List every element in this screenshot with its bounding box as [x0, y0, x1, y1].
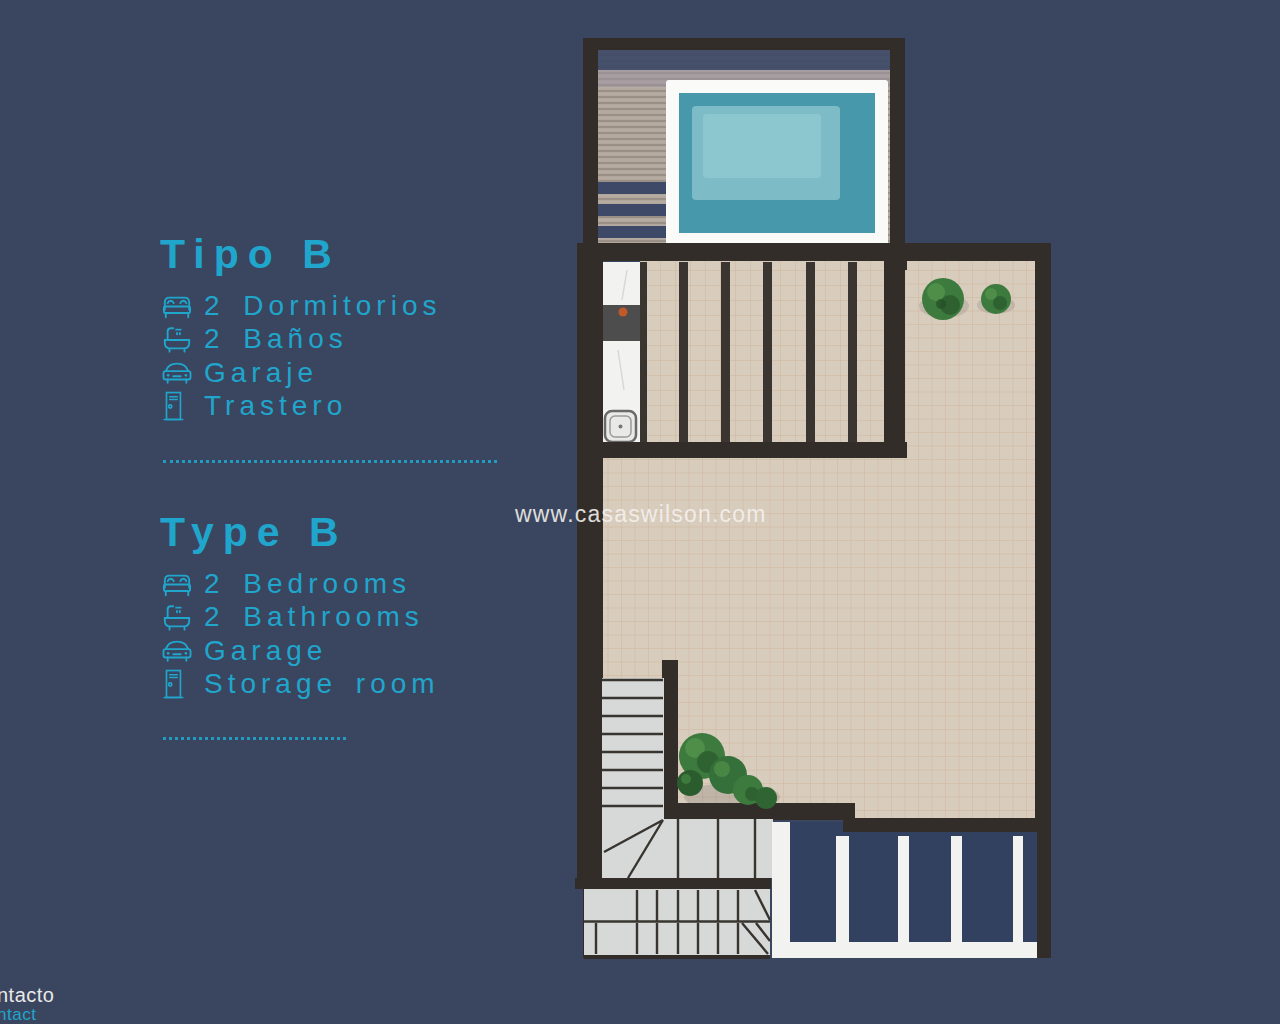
roof-terrace-right: [903, 258, 1037, 820]
contact-link-partial[interactable]: ntacto: [0, 984, 54, 1007]
bed-icon: [160, 567, 198, 601]
floor-plan: [575, 30, 1067, 965]
legend-item-label: 2 Bedrooms: [198, 570, 411, 598]
legend-item-label: 2 Bathrooms: [198, 603, 424, 631]
legend-title-es: Tipo B: [160, 234, 341, 275]
watermark: www.casaswilson.com: [515, 501, 767, 528]
door-icon: [160, 667, 198, 701]
car-icon: [160, 356, 198, 390]
legend-title-en: Type B: [160, 512, 348, 553]
legend-row-bedrooms: 2 Dormitorios: [160, 289, 441, 323]
car-icon: [160, 634, 198, 668]
brochure-page: Tipo B 2 Dormitorios: [0, 0, 1280, 1024]
contact-link-partial-en[interactable]: ntact: [0, 1005, 36, 1024]
summer-kitchen: [601, 262, 640, 448]
roof-pool-block: [583, 38, 905, 250]
sink: [605, 411, 636, 442]
bath-icon: [160, 600, 198, 634]
deck-stripes: [598, 182, 668, 238]
legend-row-bathrooms: 2 Bathrooms: [160, 601, 440, 635]
legend-item-label: 2 Dormitorios: [198, 292, 441, 320]
burner-dot: [619, 308, 628, 317]
winder-stairs: [602, 819, 773, 878]
swimming-pool: [666, 80, 888, 246]
railing-post: [1013, 836, 1023, 942]
legend-item-label: Trastero: [198, 392, 347, 420]
door-icon: [160, 389, 198, 423]
legend-row-storage: Trastero: [160, 390, 441, 424]
bed-icon: [160, 289, 198, 323]
legend-item-label: 2 Baños: [198, 325, 348, 353]
balcony-railing: [772, 818, 1037, 958]
legend-row-garage: Garage: [160, 634, 440, 668]
legend-item-label: Garaje: [198, 359, 318, 387]
page-title-en: Type B: [160, 512, 348, 553]
separator-dotted: [163, 737, 346, 740]
legend-row-bathrooms: 2 Baños: [160, 323, 441, 357]
page-title: Tipo B: [160, 234, 341, 275]
legend-es: 2 Dormitorios 2 Baños: [160, 289, 441, 423]
legend-row-bedrooms: 2 Bedrooms: [160, 567, 440, 601]
legend-row-garage: Garaje: [160, 356, 441, 390]
legend-item-label: Storage room: [198, 670, 440, 698]
legend-item-label: Garage: [198, 637, 327, 665]
separator-dotted: [163, 460, 497, 463]
legend-en: 2 Bedrooms 2 Bathrooms: [160, 567, 440, 701]
bath-icon: [160, 322, 198, 356]
railing-post: [951, 836, 962, 942]
railing-post: [898, 836, 909, 942]
railing-post: [836, 836, 849, 942]
legend-row-storage: Storage room: [160, 668, 440, 702]
